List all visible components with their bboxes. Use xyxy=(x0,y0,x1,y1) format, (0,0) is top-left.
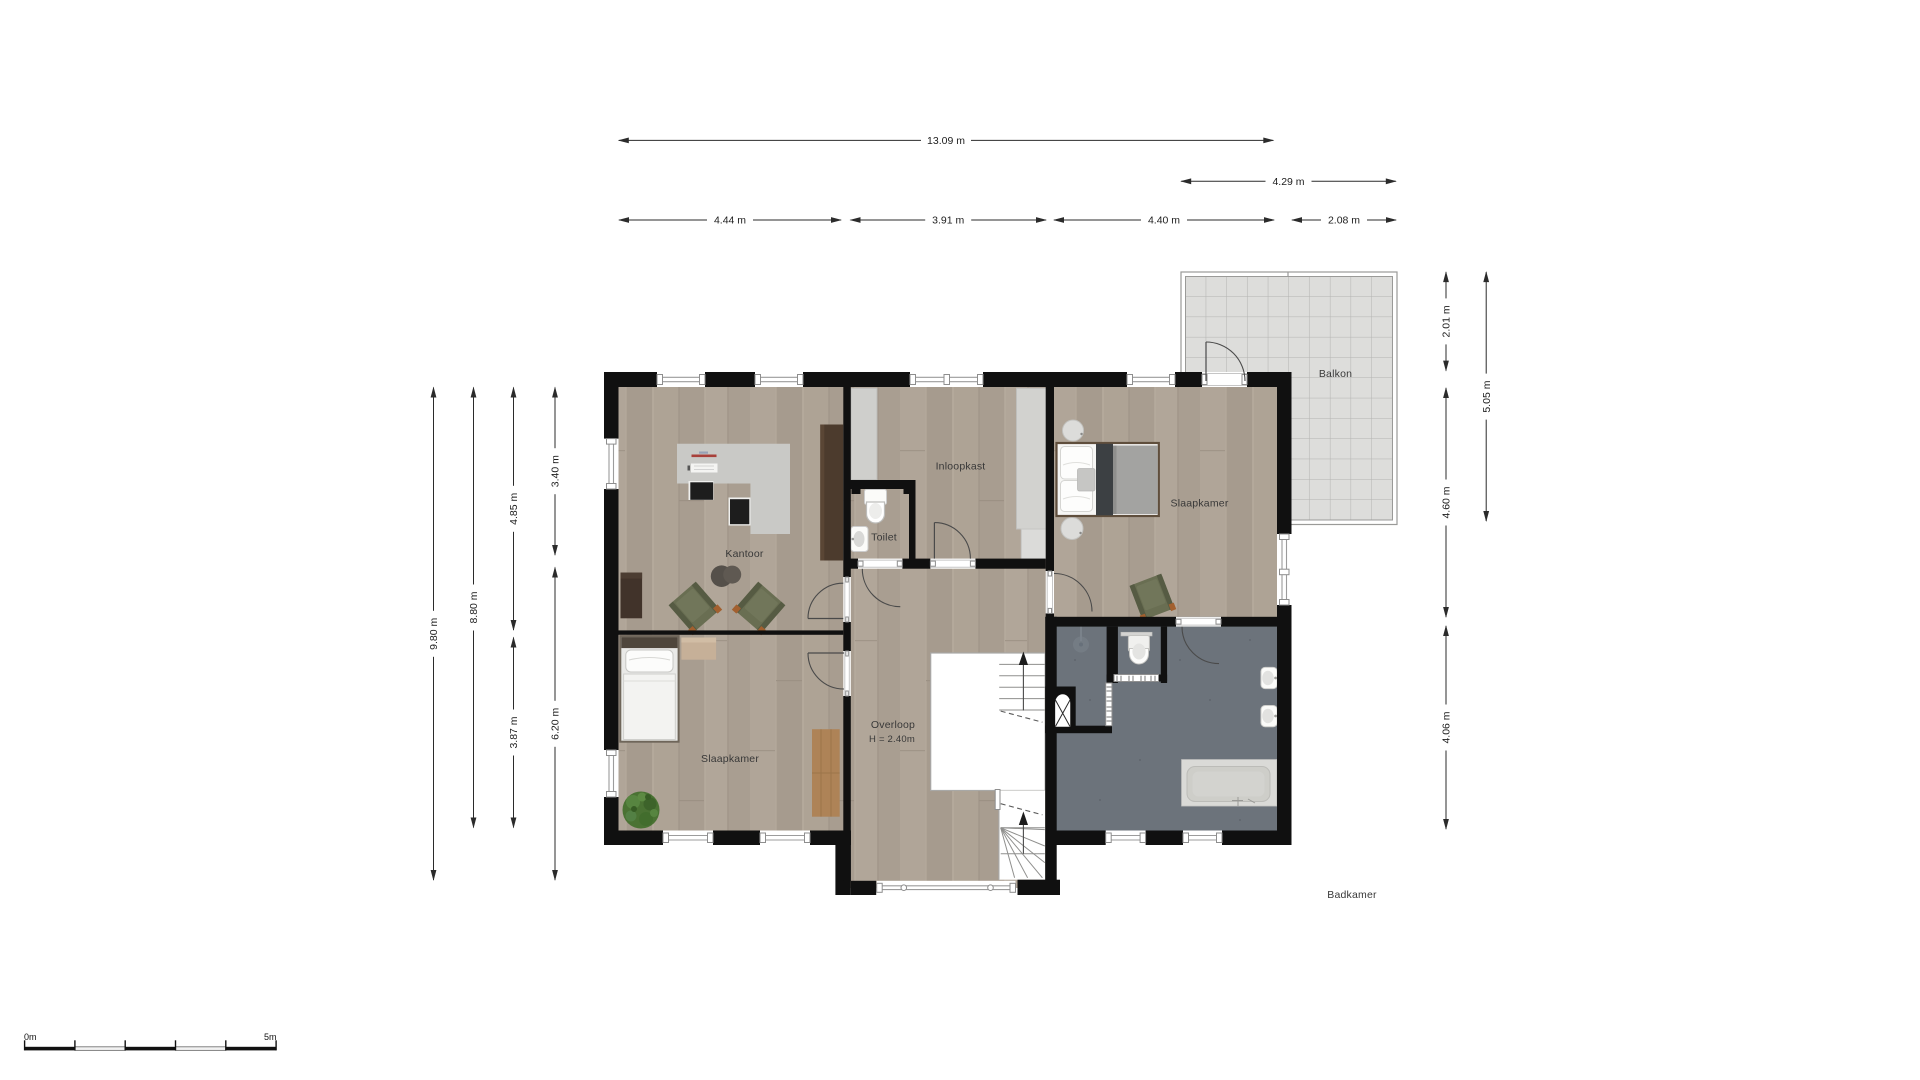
svg-text:13.09 m: 13.09 m xyxy=(927,135,965,147)
svg-text:4.29 m: 4.29 m xyxy=(1272,176,1304,188)
svg-text:3.40 m: 3.40 m xyxy=(550,455,562,487)
svg-text:Slaapkamer: Slaapkamer xyxy=(701,753,759,765)
svg-text:4.60 m: 4.60 m xyxy=(1441,486,1453,518)
svg-text:2.08 m: 2.08 m xyxy=(1328,215,1360,227)
svg-text:8.80 m: 8.80 m xyxy=(468,591,480,623)
svg-text:Toilet: Toilet xyxy=(871,532,897,544)
svg-text:5.05 m: 5.05 m xyxy=(1481,380,1493,412)
svg-text:3.91 m: 3.91 m xyxy=(932,215,964,227)
svg-text:2.01 m: 2.01 m xyxy=(1441,305,1453,337)
svg-text:Kantoor: Kantoor xyxy=(725,548,763,560)
svg-text:0m: 0m xyxy=(24,1032,37,1042)
svg-text:3.87 m: 3.87 m xyxy=(508,716,520,748)
svg-text:6.20 m: 6.20 m xyxy=(550,708,562,740)
svg-text:4.40 m: 4.40 m xyxy=(1148,215,1180,227)
svg-text:4.06 m: 4.06 m xyxy=(1441,711,1453,743)
svg-text:Overloop: Overloop xyxy=(871,719,915,731)
svg-text:H = 2.40m: H = 2.40m xyxy=(869,734,915,745)
svg-text:4.85 m: 4.85 m xyxy=(508,493,520,525)
svg-text:Inloopkast: Inloopkast xyxy=(936,461,986,473)
svg-text:Slaapkamer: Slaapkamer xyxy=(1170,498,1228,510)
svg-text:Badkamer: Badkamer xyxy=(1327,889,1377,901)
svg-text:5m: 5m xyxy=(264,1032,277,1042)
svg-text:Balkon: Balkon xyxy=(1319,368,1352,380)
svg-text:9.80 m: 9.80 m xyxy=(428,618,440,650)
svg-text:4.44 m: 4.44 m xyxy=(714,215,746,227)
